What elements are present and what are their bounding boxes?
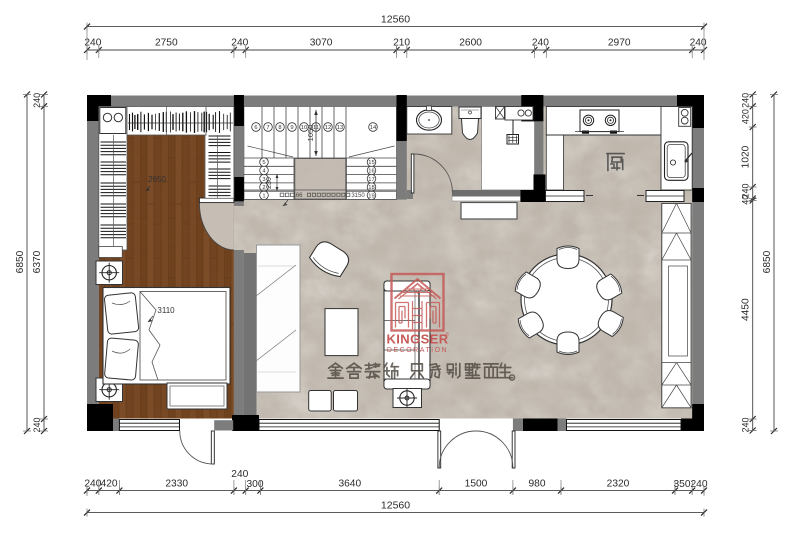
svg-text:210: 210	[393, 38, 410, 49]
svg-text:4450: 4450	[741, 298, 752, 321]
svg-text:420: 420	[741, 109, 751, 124]
svg-text:166: 166	[292, 193, 303, 199]
svg-text:12560: 12560	[381, 14, 410, 26]
svg-text:8: 8	[278, 125, 281, 131]
svg-text:2600: 2600	[459, 38, 482, 49]
svg-text:2970: 2970	[608, 38, 631, 49]
svg-text:3110: 3110	[157, 306, 175, 315]
svg-text:6370: 6370	[32, 250, 43, 273]
svg-text:15: 15	[368, 160, 374, 166]
svg-text:240: 240	[32, 93, 42, 108]
svg-text:40: 40	[741, 195, 751, 205]
svg-text:12: 12	[325, 125, 331, 131]
svg-text:5: 5	[262, 160, 265, 166]
svg-text:9: 9	[290, 125, 293, 131]
svg-text:6850: 6850	[762, 250, 773, 273]
svg-text:3640: 3640	[338, 478, 361, 489]
svg-text:1020: 1020	[741, 145, 752, 168]
svg-text:350: 350	[674, 479, 691, 490]
svg-text:®: ®	[446, 331, 450, 338]
svg-text:420: 420	[101, 478, 118, 489]
svg-text:3070: 3070	[310, 38, 333, 49]
svg-text:980: 980	[529, 478, 546, 489]
svg-text:12560: 12560	[381, 499, 410, 511]
svg-text:300: 300	[247, 479, 264, 490]
svg-text:1: 1	[262, 193, 265, 199]
svg-text:240: 240	[741, 417, 751, 432]
svg-text:2320: 2320	[607, 478, 630, 489]
svg-text:240: 240	[32, 417, 42, 432]
svg-text:6: 6	[254, 125, 257, 131]
svg-text:2330: 2330	[165, 478, 188, 489]
svg-text:19: 19	[368, 193, 374, 199]
svg-text:KINGSER: KINGSER	[386, 332, 448, 347]
svg-text:3150: 3150	[351, 193, 365, 199]
svg-text:16: 16	[368, 169, 374, 175]
svg-text:7: 7	[266, 125, 269, 131]
svg-text:240: 240	[741, 93, 751, 108]
svg-text:240: 240	[691, 479, 708, 490]
svg-text:DECORATION: DECORATION	[387, 347, 448, 354]
svg-text:6850: 6850	[15, 250, 26, 273]
svg-text:14: 14	[370, 125, 377, 131]
svg-text:2750: 2750	[155, 38, 178, 49]
svg-text:230: 230	[266, 177, 273, 189]
svg-text:17: 17	[368, 177, 374, 183]
svg-text:13: 13	[337, 125, 343, 131]
svg-text:1500: 1500	[465, 478, 488, 489]
svg-text:2650: 2650	[148, 175, 166, 184]
svg-text:1050: 1050	[306, 125, 315, 142]
